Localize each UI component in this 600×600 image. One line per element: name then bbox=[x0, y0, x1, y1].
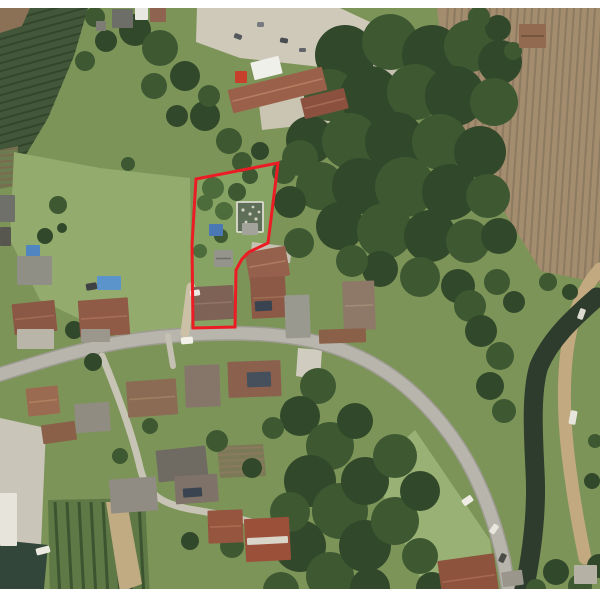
house-br-3 bbox=[574, 565, 597, 584]
neighbor-house-east bbox=[284, 295, 310, 339]
farm-red-hut bbox=[235, 71, 247, 83]
tree-canopy bbox=[262, 417, 284, 439]
tree-canopy bbox=[37, 228, 53, 244]
tree-canopy bbox=[283, 399, 301, 417]
white-building-left bbox=[0, 493, 17, 546]
solar-bl-8 bbox=[247, 372, 272, 388]
car-road-1 bbox=[181, 336, 194, 344]
satellite-aerial-view bbox=[0, 0, 600, 600]
house-bl-6 bbox=[126, 378, 178, 417]
tree-canopy bbox=[142, 418, 158, 434]
tree-canopy bbox=[465, 315, 497, 347]
tree-canopy bbox=[282, 140, 318, 176]
house-left-1 bbox=[0, 195, 15, 222]
house-bl-2 bbox=[81, 329, 110, 342]
tree-canopy bbox=[121, 157, 135, 171]
tree-canopy bbox=[373, 434, 417, 478]
field-shed-ne bbox=[519, 24, 546, 48]
tree-canopy bbox=[274, 186, 306, 218]
house-bl-12 bbox=[207, 509, 243, 543]
house-bl-10 bbox=[109, 476, 158, 513]
neighbor-house-wing bbox=[250, 276, 287, 319]
tree-canopy bbox=[562, 284, 578, 300]
house-top-1 bbox=[112, 9, 133, 28]
ground-detail-dot bbox=[252, 206, 255, 209]
tree-canopy bbox=[316, 202, 364, 250]
house-left-3 bbox=[17, 256, 52, 285]
tree-canopy bbox=[206, 430, 228, 452]
tree-canopy bbox=[228, 183, 246, 201]
tree-canopy bbox=[251, 142, 269, 160]
tree-canopy bbox=[492, 399, 516, 423]
house-bl-1 bbox=[17, 329, 54, 349]
tree-canopy bbox=[470, 78, 518, 126]
parcel-blue-structure bbox=[209, 224, 223, 236]
pool-big bbox=[97, 276, 121, 290]
car-gravel-4 bbox=[299, 48, 306, 52]
ground-detail-dot bbox=[248, 212, 251, 215]
tree-canopy bbox=[112, 448, 128, 464]
house-br-2 bbox=[501, 570, 524, 588]
tree-canopy bbox=[242, 458, 262, 478]
ground-detail-dot bbox=[245, 221, 248, 224]
house-bl-3 bbox=[26, 385, 61, 416]
tree-canopy bbox=[336, 245, 368, 277]
tree-canopy bbox=[503, 291, 525, 313]
tree-canopy bbox=[142, 30, 178, 66]
house-bl-5 bbox=[74, 402, 111, 433]
tree-canopy bbox=[49, 196, 67, 214]
tree-canopy bbox=[75, 51, 95, 71]
pool-small bbox=[26, 245, 40, 256]
aerial-photo-frame bbox=[0, 0, 600, 600]
tree-canopy bbox=[57, 223, 67, 233]
neighbor-solar-panel bbox=[255, 301, 273, 312]
ground-detail-dot bbox=[258, 211, 261, 214]
tree-canopy bbox=[198, 85, 220, 107]
tree-canopy bbox=[486, 342, 514, 370]
solar-bl-11 bbox=[183, 487, 203, 497]
tree-canopy bbox=[476, 372, 504, 400]
house-bl-7 bbox=[184, 364, 220, 407]
house-left-2 bbox=[0, 227, 11, 246]
car-gravel-2 bbox=[257, 22, 264, 27]
tree-canopy bbox=[95, 30, 117, 52]
tree-canopy bbox=[400, 257, 440, 297]
ground-detail-dot bbox=[241, 208, 244, 211]
tree-canopy bbox=[216, 128, 242, 154]
tree-canopy bbox=[141, 73, 167, 99]
parcel-slab bbox=[242, 223, 258, 235]
tree-canopy bbox=[337, 403, 373, 439]
tree-canopy bbox=[170, 61, 200, 91]
ground-detail-dot bbox=[254, 217, 257, 220]
tree-canopy bbox=[484, 269, 510, 295]
tree-canopy bbox=[400, 471, 440, 511]
tree-canopy bbox=[193, 244, 207, 258]
house-top-3 bbox=[150, 8, 166, 22]
tree-canopy bbox=[539, 273, 557, 291]
tree-canopy bbox=[166, 105, 188, 127]
tree-canopy bbox=[402, 538, 438, 574]
tree-canopy bbox=[543, 559, 569, 585]
tree-canopy bbox=[84, 353, 102, 371]
parcel-garage bbox=[214, 250, 233, 267]
tree-canopy bbox=[197, 195, 213, 211]
house-road-right bbox=[319, 328, 366, 344]
tree-canopy bbox=[284, 228, 314, 258]
house-east-2 bbox=[342, 280, 376, 330]
house-top-4 bbox=[96, 21, 106, 31]
tree-canopy bbox=[468, 6, 490, 28]
tree-canopy bbox=[215, 202, 233, 220]
tree-canopy bbox=[481, 218, 517, 254]
tree-canopy bbox=[466, 174, 510, 218]
tree-canopy bbox=[181, 532, 199, 550]
tree-canopy bbox=[584, 473, 600, 489]
